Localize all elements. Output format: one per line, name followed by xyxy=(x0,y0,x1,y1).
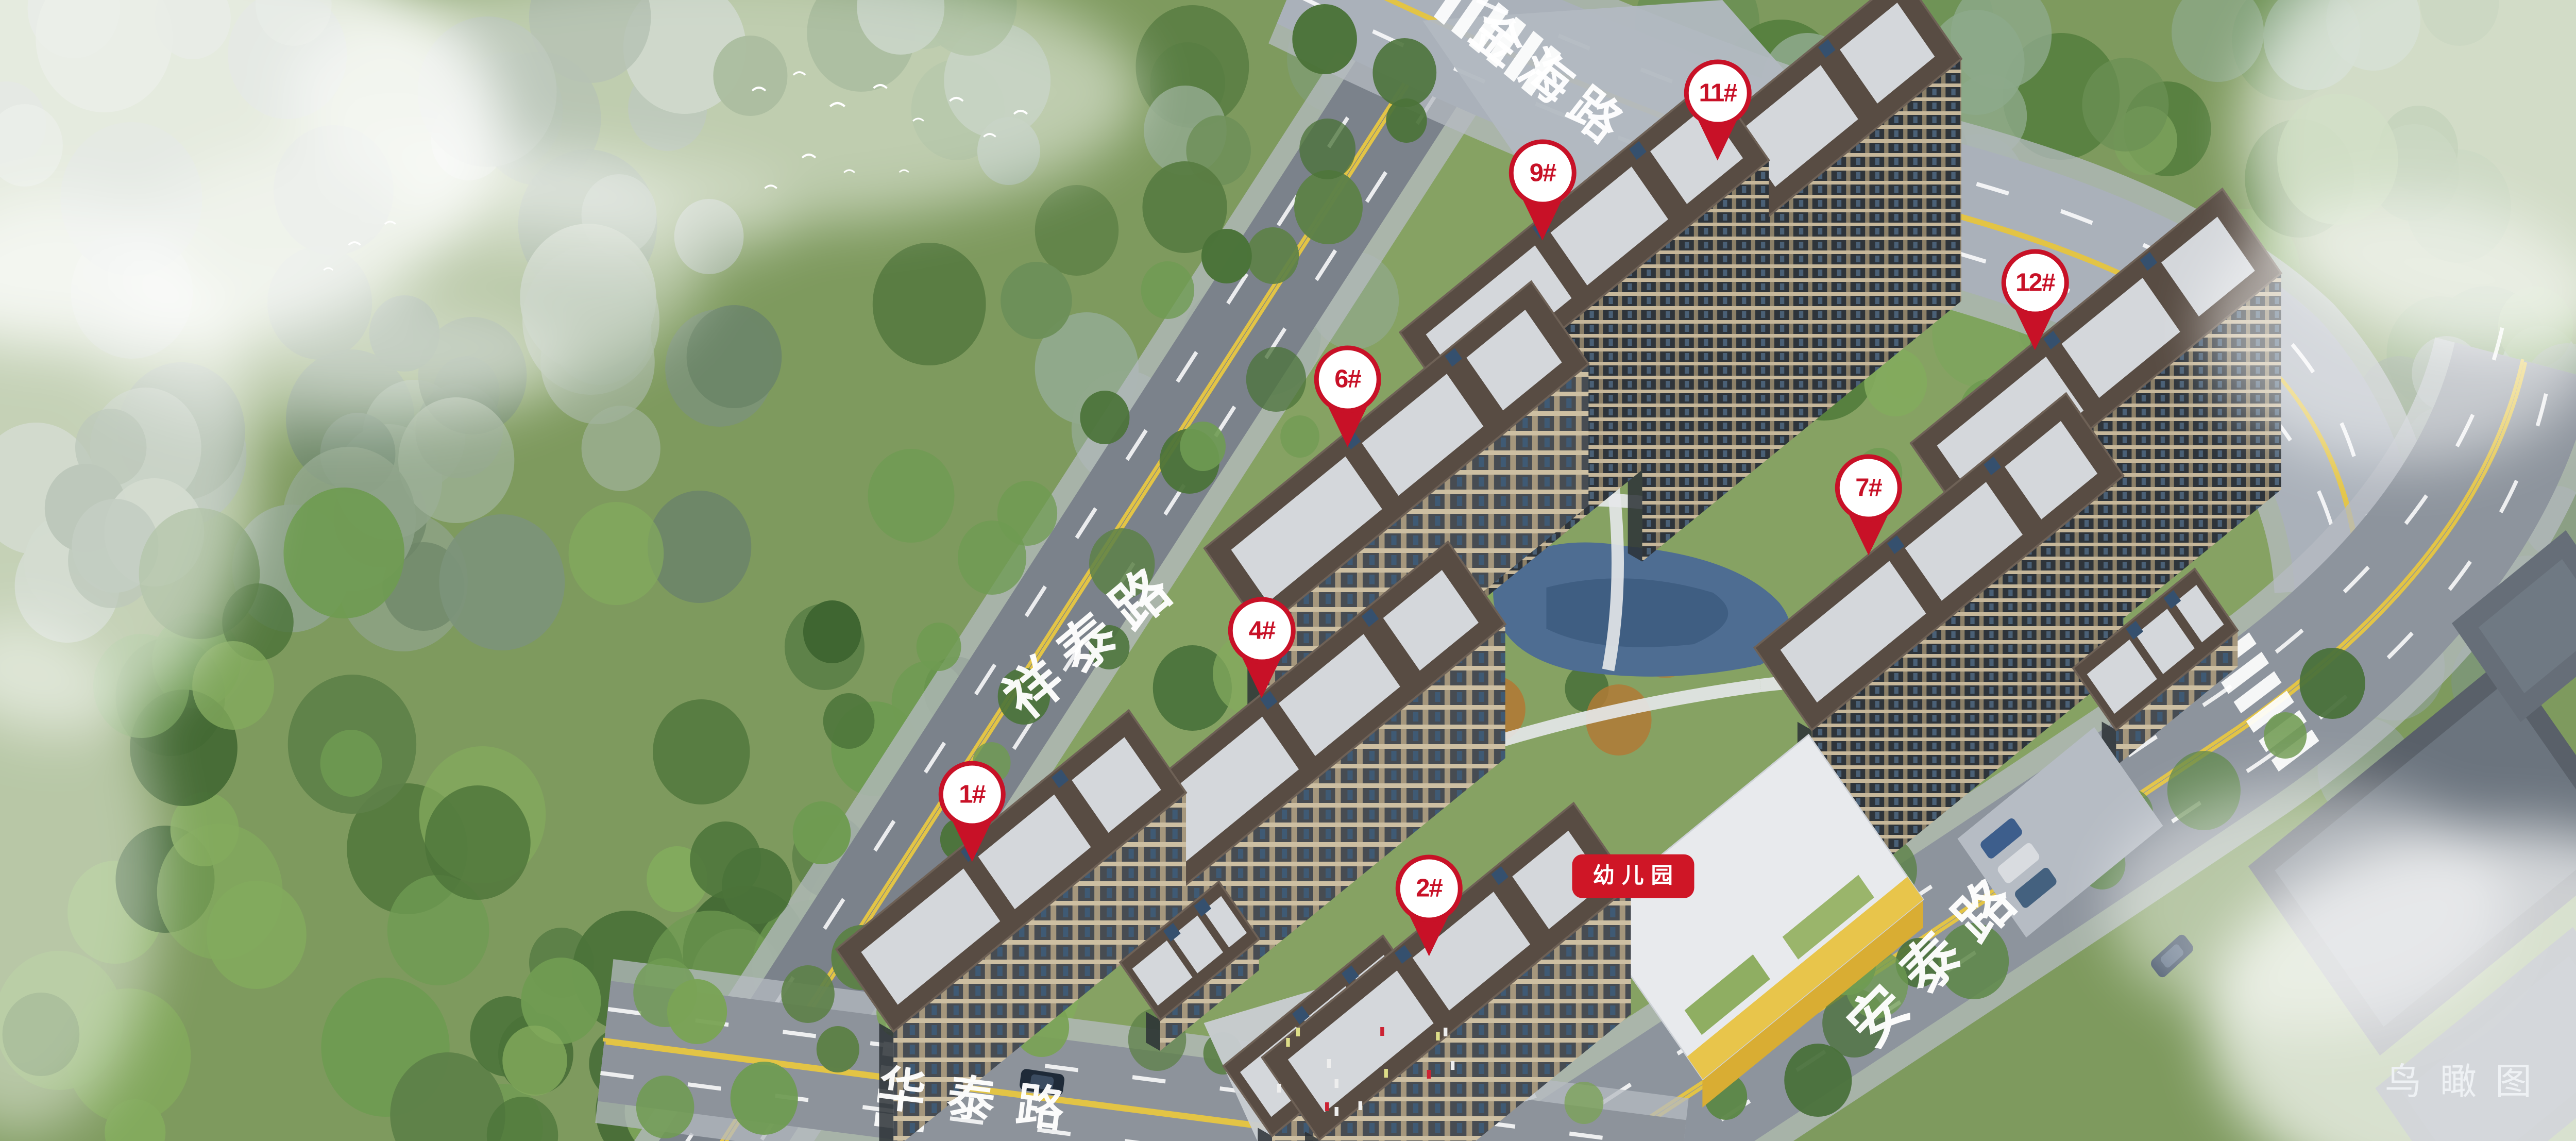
mist-cloud xyxy=(95,289,571,433)
street-tree xyxy=(1299,119,1355,179)
building-marker-7[interactable]: 7# xyxy=(1835,454,1902,556)
street-tree xyxy=(1141,261,1194,319)
street-tree xyxy=(917,623,961,671)
building-marker-12-label: 12# xyxy=(2002,249,2069,316)
tree-canopy xyxy=(1001,262,1072,339)
building-marker-6-label: 6# xyxy=(1314,346,1381,413)
person-figure xyxy=(1325,1102,1329,1111)
tree-canopy xyxy=(192,641,274,730)
tree-canopy xyxy=(582,406,660,491)
building-marker-9-label: 9# xyxy=(1509,139,1577,207)
person-figure xyxy=(1335,1107,1338,1116)
aerial-rendering-stage: 金海路 祥泰路 安泰路 华泰路 幼儿园 1# 2# 4# 6# 7# 9# xyxy=(0,0,2576,1141)
street-tree xyxy=(1938,923,2009,999)
street-tree xyxy=(2264,712,2307,759)
person-figure xyxy=(1335,1079,1338,1088)
street-tree xyxy=(1565,1082,1604,1124)
street-tree xyxy=(1246,347,1306,412)
person-figure xyxy=(1296,1028,1300,1036)
person-figure xyxy=(1427,1070,1431,1079)
street-tree xyxy=(793,801,851,864)
person-figure xyxy=(1380,1027,1384,1036)
street-tree xyxy=(1201,229,1252,283)
person-figure xyxy=(1444,1028,1447,1036)
person-figure xyxy=(1359,1101,1362,1110)
street-tree xyxy=(1294,170,1363,244)
street-tree xyxy=(1180,422,1226,471)
street-tree xyxy=(731,1062,798,1135)
building-marker-4-label: 4# xyxy=(1228,597,1296,664)
person-figure xyxy=(1451,1061,1454,1070)
street-tree xyxy=(1247,227,1299,284)
street-tree xyxy=(1089,528,1155,599)
tree-canopy xyxy=(2082,58,2168,152)
building-marker-7-label: 7# xyxy=(1835,454,1902,522)
tree-canopy xyxy=(320,730,382,797)
tree-canopy xyxy=(653,699,750,804)
scene-canvas xyxy=(0,0,2576,1141)
building-marker-2-label: 2# xyxy=(1395,855,1463,922)
street-tree xyxy=(1080,391,1129,444)
tree-canopy xyxy=(283,488,404,618)
person-figure xyxy=(1327,1059,1331,1068)
street-tree xyxy=(1372,38,1436,107)
tree-canopy xyxy=(207,881,307,989)
building-marker-4[interactable]: 4# xyxy=(1228,597,1296,698)
person-figure xyxy=(1436,1032,1439,1041)
mist-cloud xyxy=(2108,783,2507,1031)
building-side-shade xyxy=(879,1023,893,1141)
street-tree xyxy=(997,481,1057,546)
tree-canopy xyxy=(687,305,782,408)
building-marker-2[interactable]: 2# xyxy=(1395,855,1463,957)
street-tree xyxy=(1292,4,1357,74)
street-tree xyxy=(1089,625,1129,669)
building-marker-9[interactable]: 9# xyxy=(1509,139,1577,241)
building-marker-11[interactable]: 11# xyxy=(1684,59,1752,161)
tree-canopy xyxy=(425,785,531,900)
building-marker-1-label: 1# xyxy=(938,761,1006,828)
street-tree xyxy=(2299,648,2365,719)
tree-canopy xyxy=(873,243,986,365)
building-marker-12[interactable]: 12# xyxy=(2002,249,2069,350)
tree-canopy xyxy=(1035,185,1119,276)
street-tree xyxy=(823,693,875,749)
person-figure xyxy=(1277,1084,1281,1093)
tree-canopy xyxy=(868,449,955,543)
person-figure xyxy=(1286,1038,1290,1047)
street-tree xyxy=(817,1026,859,1072)
tree-canopy xyxy=(439,514,565,650)
tree-canopy xyxy=(803,600,861,663)
street-tree xyxy=(998,668,1050,725)
person-figure xyxy=(1384,1069,1388,1078)
building-marker-1[interactable]: 1# xyxy=(938,761,1006,862)
tree-canopy xyxy=(569,502,664,605)
building-marker-11-label: 11# xyxy=(1684,59,1752,127)
tree-canopy xyxy=(502,1026,567,1096)
street-tree xyxy=(722,848,792,924)
street-tree xyxy=(636,1076,694,1138)
street-tree xyxy=(781,965,834,1023)
building-marker-6[interactable]: 6# xyxy=(1314,346,1381,447)
mist-cloud xyxy=(395,155,795,278)
street-tree xyxy=(667,979,727,1044)
